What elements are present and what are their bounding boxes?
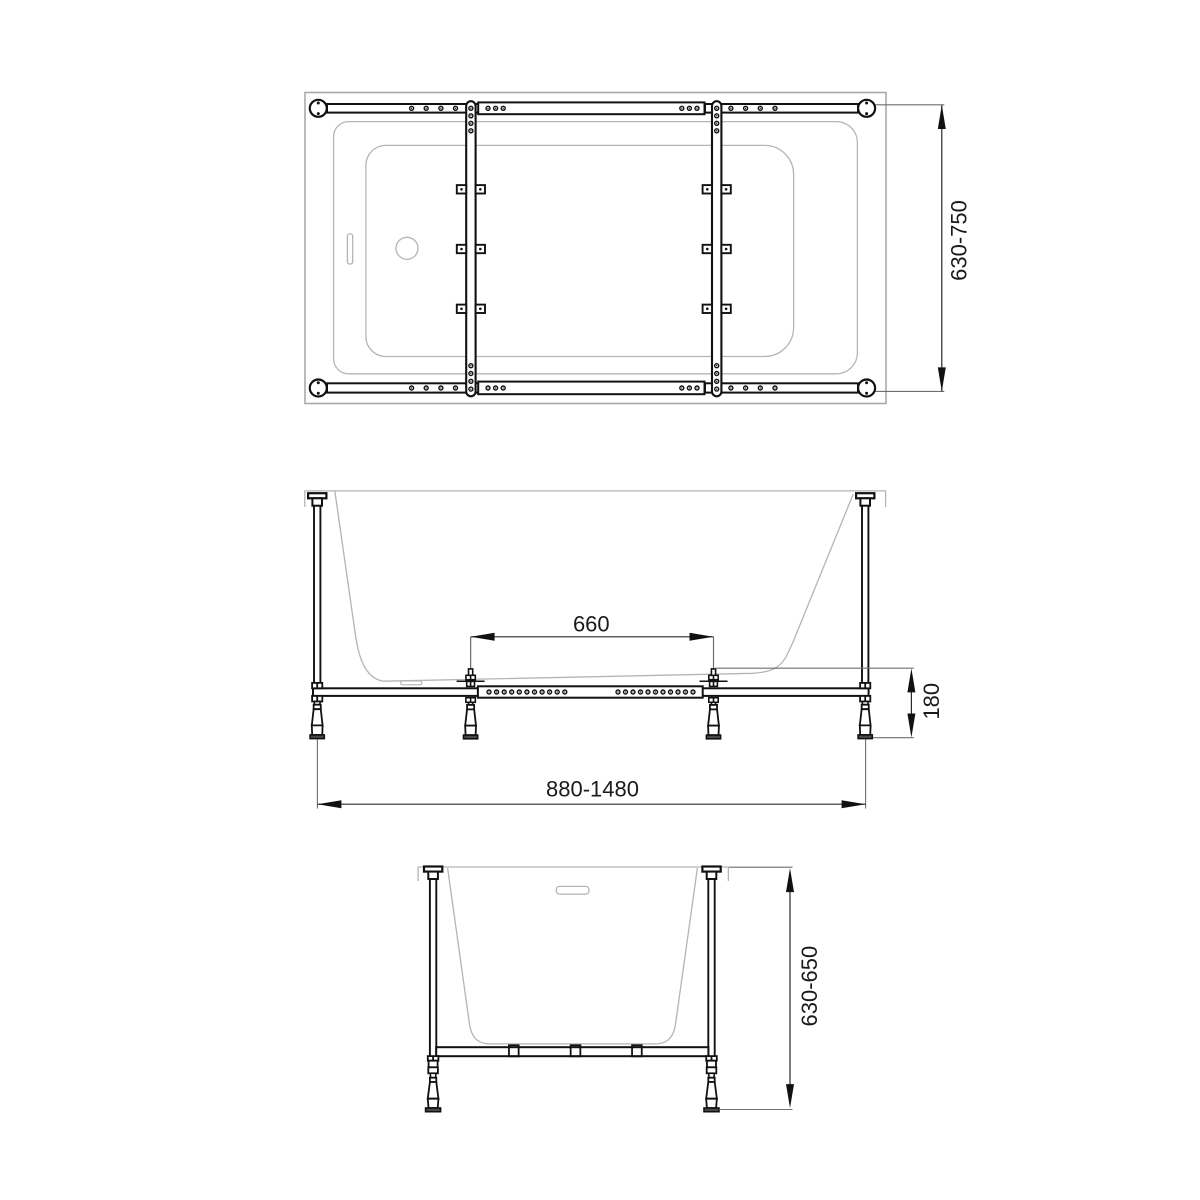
svg-text:630-750: 630-750	[946, 200, 971, 281]
svg-text:660: 660	[573, 612, 610, 637]
svg-text:880-1480: 880-1480	[546, 776, 639, 801]
svg-text:630-650: 630-650	[797, 946, 822, 1027]
svg-text:180: 180	[919, 683, 944, 720]
